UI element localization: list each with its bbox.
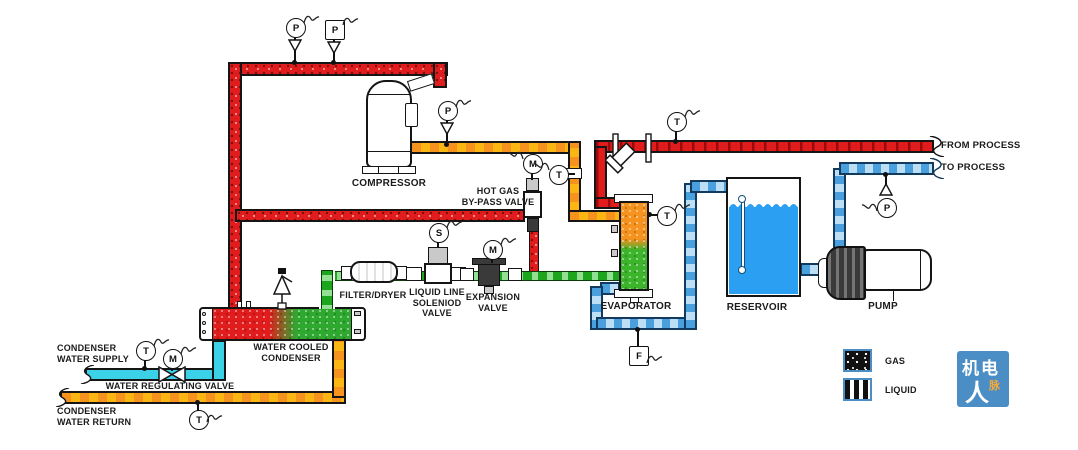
water-return-label-line1: CONDENSER <box>57 406 131 417</box>
water-return-label: CONDENSER WATER RETURN <box>57 406 131 427</box>
tap-dot <box>142 366 147 371</box>
to-process-label: TO PROCESS <box>941 163 1005 174</box>
expansion-valve-label: EXPANSION VALVE <box>443 292 543 313</box>
gauge-triangle <box>288 39 302 52</box>
reservoir-level-gauge <box>742 201 744 271</box>
instrument-letter: S <box>436 228 442 239</box>
condenser-label-line1: WATER COOLED <box>231 342 351 353</box>
pipe-pump-discharge-riser <box>833 168 846 250</box>
logo-text-bottom: 人 <box>965 373 989 408</box>
pipe-chilled-to-reservoir <box>690 180 728 193</box>
condenser-right-tab <box>354 311 361 316</box>
signal-squiggle <box>342 16 359 28</box>
instrument-letter: P <box>884 203 890 214</box>
pipe-break-return <box>55 388 71 407</box>
condenser-label-line2: CONDENSER <box>231 353 351 364</box>
pump-impeller-housing <box>826 246 866 300</box>
gauge-triangle <box>440 122 454 135</box>
tap-dot <box>331 60 336 65</box>
solenoid-coupling <box>406 267 422 281</box>
pipe-suction-evap-stub <box>568 210 621 222</box>
tap-dot <box>635 327 640 332</box>
signal-squiggle <box>455 98 472 110</box>
pipe-hot-gas-drop <box>529 230 539 276</box>
expansion-label-line1: EXPANSION <box>443 292 543 303</box>
pump-label: PUMP <box>823 302 943 313</box>
solenoid-valve-body <box>424 263 452 284</box>
instrument-letter: T <box>664 211 670 222</box>
instrument-letter: T <box>556 170 562 181</box>
reservoir-gauge-top <box>738 195 746 203</box>
water-supply-label-line1: CONDENSER <box>57 343 129 354</box>
signal-squiggle <box>446 219 463 231</box>
instrument-letter: T <box>143 346 149 357</box>
signal-squiggle <box>500 236 517 248</box>
reservoir-gauge-bottom <box>738 266 746 274</box>
compressor-seam-bottom <box>368 151 410 152</box>
temp-sensor-suction: T <box>549 165 569 185</box>
instrument-letter: P <box>445 106 451 117</box>
tap-dot <box>673 139 678 144</box>
condenser-bolt <box>202 321 206 325</box>
filter-dryer-body <box>350 261 398 283</box>
from-process-label: FROM PROCESS <box>941 141 1020 152</box>
instrument-letter: M <box>489 245 497 256</box>
evaporator-body <box>619 201 649 291</box>
instrument-letter: P <box>332 25 338 36</box>
pump-motor-endcap-line <box>920 251 921 289</box>
signal-squiggle <box>206 413 223 425</box>
tap-dot <box>647 212 652 217</box>
condenser-label: WATER COOLED CONDENSER <box>231 342 351 363</box>
signal-squiggle <box>507 150 524 162</box>
gauge-triangle <box>879 183 893 196</box>
signal-squiggle <box>646 354 663 366</box>
legend-liquid-label: LIQUID <box>885 385 917 396</box>
evaporator-nub <box>611 249 618 257</box>
instrument-letter: M <box>169 354 177 365</box>
hot-gas-bypass-label-line1: HOT GAS <box>448 186 548 197</box>
solenoid-coil-box <box>428 247 448 264</box>
pipe-hot-gas-branch <box>235 209 525 222</box>
legend-gas-label: GAS <box>885 356 905 367</box>
hot-gas-valve-bottom <box>527 218 539 232</box>
instrument-letter: P <box>293 23 299 34</box>
pipe-condenser-water-supply <box>85 368 226 381</box>
compressor-label: COMPRESSOR <box>329 179 449 190</box>
compressor-foot-line <box>378 167 379 173</box>
condenser-left-cap-line <box>212 308 213 340</box>
condenser-bolt <box>202 312 206 316</box>
compressor-discharge-fitting <box>407 73 435 91</box>
pipe-discharge-compressor-drop <box>433 62 447 88</box>
brand-logo: 机电 人 脉 <box>957 351 1009 407</box>
pipe-chilled-bottom <box>596 317 697 330</box>
expansion-label-line2: VALVE <box>443 303 543 314</box>
water-return-label-line2: WATER RETURN <box>57 417 131 428</box>
evaporator-nub <box>611 225 618 233</box>
legend-gas-swatch <box>843 349 872 372</box>
pump-motor <box>864 249 932 291</box>
hot-gas-bypass-label-line2: BY-PASS VALVE <box>448 197 548 208</box>
refrigeration-system-diagram: P P P T M S M T T P F T M <box>0 0 1078 450</box>
instrument-letter: F <box>636 351 642 362</box>
signal-squiggle <box>533 161 550 173</box>
instrument-stem <box>637 330 639 347</box>
compressor-terminal-box <box>405 103 418 127</box>
water-regulating-valve-label: WATER REGULATING VALVE <box>70 381 270 392</box>
signal-squiggle <box>180 345 197 357</box>
pressure-gauge-to-process: P <box>877 198 897 218</box>
signal-squiggle <box>861 202 878 214</box>
pipe-supply-riser <box>212 340 226 381</box>
signal-squiggle <box>674 202 691 214</box>
water-supply-label: CONDENSER WATER SUPPLY <box>57 343 129 364</box>
legend-liquid-swatch <box>843 378 872 401</box>
relief-valve <box>268 266 296 310</box>
pipe-discharge-left-riser <box>228 62 242 310</box>
hot-gas-bypass-label: HOT GAS BY-PASS VALVE <box>448 186 548 207</box>
condenser-bolt <box>202 330 206 334</box>
compressor-seam-top <box>368 94 410 95</box>
tap-dot <box>195 400 200 405</box>
water-supply-label-line2: WATER SUPPLY <box>57 354 129 365</box>
pipe-discharge-top <box>228 62 448 76</box>
logo-text-accent: 脉 <box>989 377 1000 393</box>
instrument-letter: T <box>196 415 202 426</box>
expansion-coupling <box>460 268 474 281</box>
strainer <box>606 130 658 180</box>
compressor-base <box>362 166 416 174</box>
expansion-coupling <box>508 268 522 281</box>
pipe-suction-horizontal <box>410 141 581 154</box>
pipe-condenser-water-return <box>60 391 346 404</box>
instrument-letter: T <box>674 117 680 128</box>
compressor-foot-line <box>398 167 399 173</box>
evaporator-label: EVAPORATOR <box>576 302 696 313</box>
signal-squiggle <box>153 337 170 349</box>
reservoir-water <box>729 207 798 294</box>
condenser-fill <box>213 309 352 339</box>
expansion-valve-body <box>478 264 500 286</box>
condenser-right-cap-line <box>351 308 352 340</box>
signal-squiggle <box>303 14 320 26</box>
condenser-right-tab <box>354 329 361 334</box>
pump-mount-line <box>893 291 894 301</box>
tap-dot <box>292 60 297 65</box>
signal-squiggle <box>684 108 701 120</box>
reservoir-label: RESERVOIR <box>697 303 817 314</box>
gauge-triangle <box>327 41 341 54</box>
tap-dot <box>444 142 449 147</box>
tap-dot <box>883 172 888 177</box>
